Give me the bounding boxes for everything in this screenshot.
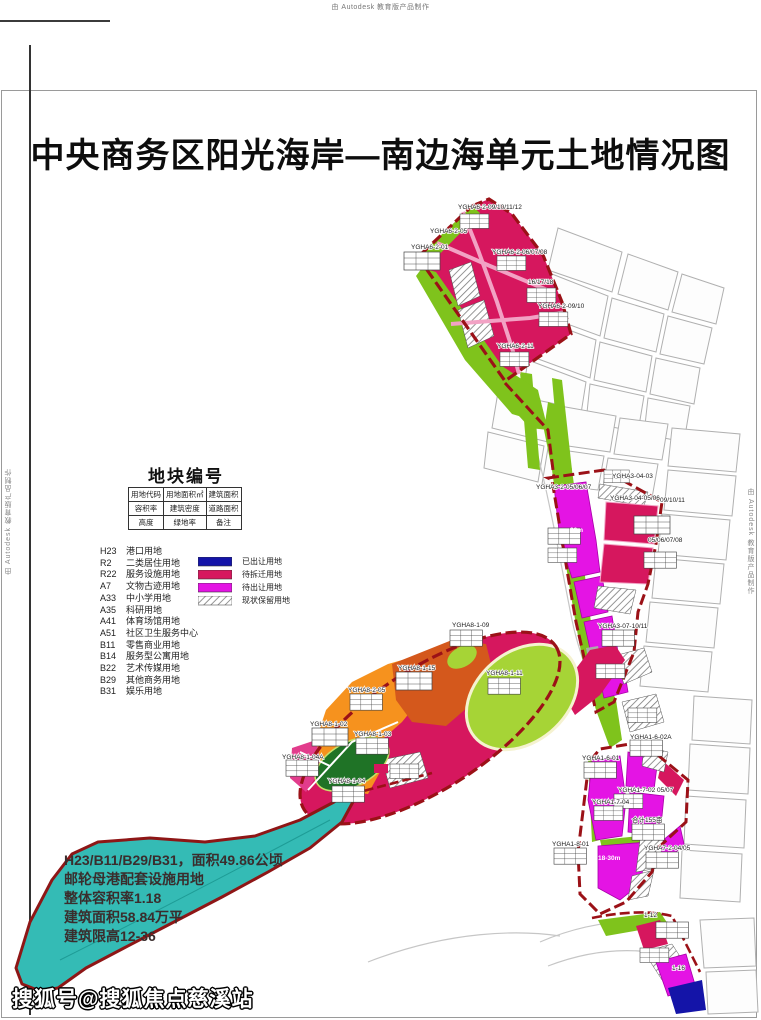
parcel-label: YGHA8-1-09	[452, 622, 490, 629]
plan-sheet: 由 Autodesk 教育版产品制作 由 Autodesk 教育版产品制作 由 …	[0, 0, 761, 1020]
parcel-label: YGHA3-04-05/06	[610, 495, 660, 502]
parcel-label: YGHA3-04-03	[612, 473, 653, 480]
harbor-note-line: 整体容积率1.18	[64, 889, 283, 908]
parcel-label: YGHA6-2-06/07/08	[492, 249, 548, 256]
parcel-label: YGHA6-2-01	[411, 244, 449, 251]
parcel-label: YGHA8-1-03	[354, 731, 392, 738]
parcel-label: YGHA8-1-15	[398, 665, 436, 672]
parcel-label: YGHA8-1-11	[486, 670, 523, 677]
parcel-label: 合计155亩	[632, 815, 663, 824]
harbor-note-line: 邮轮母港配套设施用地	[64, 870, 283, 889]
parcel-label: YGHA1-6-02A	[630, 734, 672, 741]
harbor-note-line: 建筑面积58.84万平	[64, 908, 283, 927]
parcel-label: YGHA6-2-09/10	[538, 303, 585, 310]
sohu-watermark: 搜狐号@搜狐焦点慈溪站	[12, 983, 253, 1013]
parcel-label: YGHA6-2-05	[430, 228, 468, 235]
harbor-note-line: 建筑限高12-36	[64, 927, 283, 946]
parcel-label: 18-30m	[598, 855, 621, 862]
parcel-label: YGHA1-8-01	[552, 841, 590, 848]
parcel-label: 1-16	[672, 965, 685, 972]
parcel-label: YGHA6-2-11	[497, 343, 534, 350]
parcel-label: YGHA7-2-04/05	[644, 845, 691, 852]
parcel-label: YGHA1-6-01	[582, 755, 620, 762]
harbor-note-line: H23/B11/B29/B31，面积49.86公顷	[64, 851, 283, 870]
parcel-label: 16/17/18	[528, 279, 554, 286]
parcel-label: YGHA3-2-05/06/07	[536, 484, 592, 491]
parcel-label: YGHA8-1-02	[310, 721, 348, 728]
parcel-label: 09/10/11	[660, 497, 685, 504]
parcel-label: YGHA1-7-02 05/07	[618, 787, 674, 794]
parcel-label: YGHA1-7-04	[592, 799, 630, 806]
parcel-label: YGHA8-1-04	[328, 778, 366, 785]
parcel-label: YGHA3-07-10/11	[598, 623, 648, 630]
parcel-label: YGHA8-1-04A	[282, 754, 324, 761]
parcel-label: 05/06/07/08	[648, 537, 683, 544]
parcel-label: 90m	[570, 527, 583, 534]
parcel-label: 1-12	[644, 912, 657, 919]
harbor-note: H23/B11/B29/B31，面积49.86公顷 邮轮母港配套设施用地 整体容…	[64, 851, 283, 946]
parcel-label: YGHA8-2-05	[348, 687, 386, 694]
parcel-label: YGHA6-2-09/10/11/12	[458, 204, 522, 211]
